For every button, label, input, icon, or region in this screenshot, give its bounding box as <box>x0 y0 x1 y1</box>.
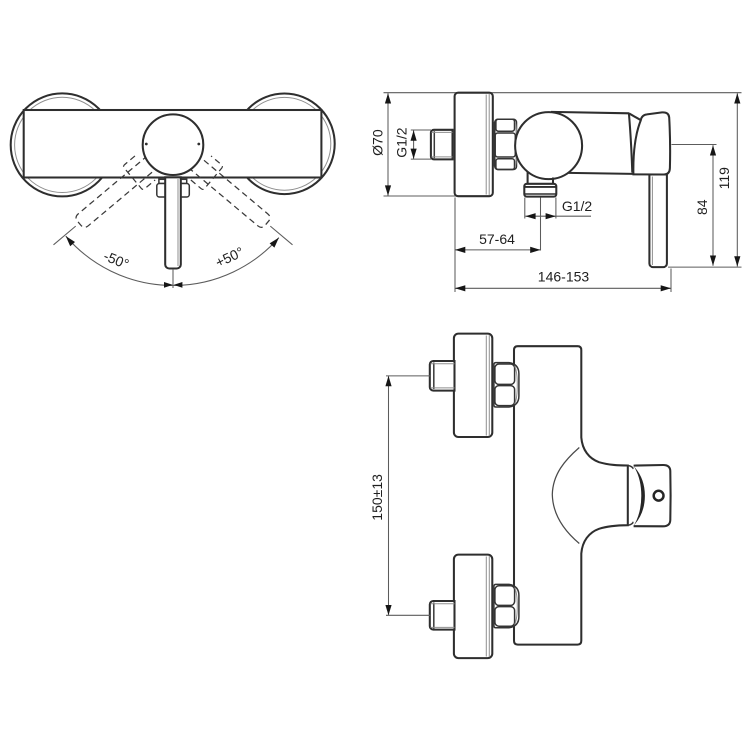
svg-text:146-153: 146-153 <box>538 269 590 285</box>
svg-text:57-64: 57-64 <box>479 231 515 247</box>
svg-text:150±13: 150±13 <box>369 474 385 521</box>
svg-text:G1/2: G1/2 <box>393 127 409 158</box>
svg-text:119: 119 <box>716 167 732 190</box>
svg-text:84: 84 <box>694 199 710 215</box>
svg-text:Ø70: Ø70 <box>370 129 386 156</box>
svg-text:G1/2: G1/2 <box>562 198 593 214</box>
